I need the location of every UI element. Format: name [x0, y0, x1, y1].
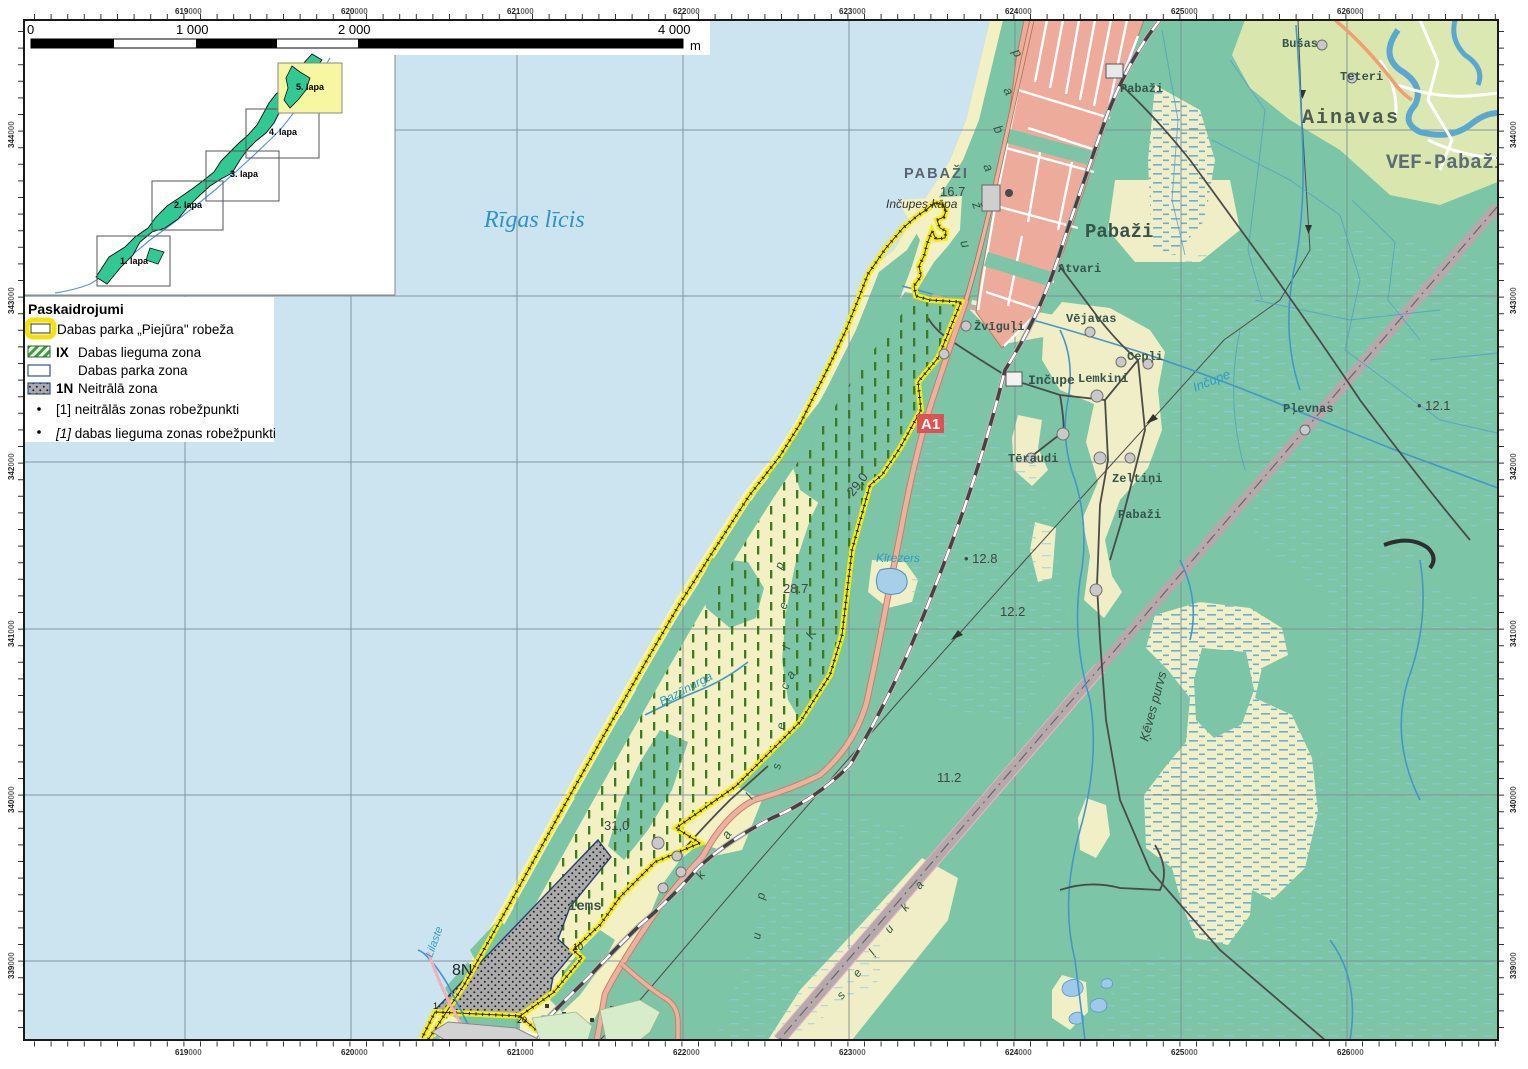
svg-text:Vējavas: Vējavas — [1066, 312, 1116, 326]
svg-text:4. lapa: 4. lapa — [269, 127, 298, 137]
svg-text:Pļevnas: Pļevnas — [1283, 402, 1333, 416]
svg-text:A1: A1 — [921, 416, 940, 433]
svg-text:Zeltiņi: Zeltiņi — [1112, 472, 1162, 486]
svg-text:Inčupes kāpa: Inčupes kāpa — [886, 197, 958, 211]
svg-text:28.7: 28.7 — [783, 581, 808, 596]
svg-text:622000: 622000 — [673, 7, 700, 16]
svg-text:342000: 342000 — [7, 453, 16, 480]
svg-text:339000: 339000 — [7, 952, 16, 979]
svg-text:341000: 341000 — [1509, 620, 1518, 647]
svg-text:2 000: 2 000 — [338, 22, 371, 37]
svg-text:626000: 626000 — [1337, 7, 1364, 16]
svg-text:PABAŽI: PABAŽI — [904, 164, 969, 182]
svg-text:Pabaži: Pabaži — [1120, 82, 1163, 96]
svg-text:620000: 620000 — [341, 7, 368, 16]
svg-text:m: m — [690, 38, 701, 53]
svg-text:341000: 341000 — [7, 620, 16, 647]
svg-text:[1] neitrālās zonas robežpunkt: [1] neitrālās zonas robežpunkti — [56, 402, 239, 417]
svg-text:Dabas lieguma zona: Dabas lieguma zona — [78, 345, 202, 360]
svg-text:Bušas: Bušas — [1282, 37, 1318, 51]
svg-text:Inčupe: Inčupe — [1028, 373, 1075, 388]
svg-text:1 000: 1 000 — [176, 22, 209, 37]
svg-text:4 000: 4 000 — [658, 22, 691, 37]
svg-text:Neitrālā zona: Neitrālā zona — [78, 381, 158, 396]
svg-text:Lemkini: Lemkini — [1078, 372, 1128, 386]
svg-text:12.2: 12.2 — [1000, 604, 1025, 619]
svg-text:1. lapa: 1. lapa — [120, 256, 149, 266]
svg-text:IX: IX — [56, 345, 69, 360]
svg-text:621000: 621000 — [507, 7, 534, 16]
svg-text:8N: 8N — [452, 962, 472, 979]
svg-text:VEF-Pabaži: VEF-Pabaži — [1386, 152, 1506, 175]
svg-text:Dabas parka „Piejūra" robeža: Dabas parka „Piejūra" robeža — [57, 322, 234, 337]
svg-text:622000: 622000 — [673, 1048, 700, 1057]
svg-text:619000: 619000 — [175, 7, 202, 16]
svg-text:1: 1 — [433, 1001, 438, 1011]
svg-text:340000: 340000 — [7, 786, 16, 813]
svg-text:343000: 343000 — [7, 287, 16, 314]
svg-text:• 12.8: • 12.8 — [964, 551, 997, 566]
svg-text:31,0: 31,0 — [604, 818, 629, 833]
svg-text:10: 10 — [573, 942, 583, 952]
svg-text:621000: 621000 — [507, 1048, 534, 1057]
svg-text:[1] dabas lieguma zonas robežp: [1] dabas lieguma zonas robežpunkti — [55, 426, 276, 441]
svg-text:343000: 343000 — [1509, 287, 1518, 314]
svg-text:623000: 623000 — [839, 7, 866, 16]
svg-text:619000: 619000 — [175, 1048, 202, 1057]
svg-text:624000: 624000 — [1005, 7, 1032, 16]
svg-text:Pabaži: Pabaži — [1085, 221, 1153, 243]
svg-text:Pabaži: Pabaži — [1118, 508, 1161, 522]
svg-text:339000: 339000 — [1509, 952, 1518, 979]
svg-text:626000: 626000 — [1337, 1048, 1364, 1057]
svg-text:• 12.1: • 12.1 — [1417, 398, 1450, 413]
svg-text:2. lapa: 2. lapa — [174, 200, 203, 210]
svg-text:Kīrezers: Kīrezers — [876, 551, 920, 565]
svg-text:340000: 340000 — [1509, 786, 1518, 813]
svg-text:Tēraudi: Tēraudi — [1008, 452, 1058, 466]
svg-text:1N: 1N — [56, 381, 73, 396]
svg-text:Cepļi: Cepļi — [1127, 350, 1163, 364]
svg-text:20: 20 — [517, 1015, 527, 1025]
svg-text:Rīgas līcis: Rīgas līcis — [483, 207, 585, 233]
svg-text:5. lapa: 5. lapa — [296, 82, 325, 92]
svg-text:3. lapa: 3. lapa — [230, 169, 259, 179]
svg-text:Žvīguļi: Žvīguļi — [974, 319, 1024, 334]
svg-text:0: 0 — [27, 22, 34, 37]
svg-text:Dabas parka zona: Dabas parka zona — [78, 363, 188, 378]
svg-text:620000: 620000 — [341, 1048, 368, 1057]
svg-text:344000: 344000 — [7, 121, 16, 148]
svg-text:Paskaidrojumi: Paskaidrojumi — [28, 301, 124, 317]
svg-text:625000: 625000 — [1171, 7, 1198, 16]
svg-text:623000: 623000 — [839, 1048, 866, 1057]
svg-text:625000: 625000 — [1171, 1048, 1198, 1057]
svg-text:iems: iems — [568, 899, 602, 915]
svg-text:Ainavas: Ainavas — [1302, 107, 1400, 130]
svg-text:624000: 624000 — [1005, 1048, 1032, 1057]
svg-text:11.2: 11.2 — [937, 770, 961, 785]
svg-text:342000: 342000 — [1509, 453, 1518, 480]
svg-text:Atvari: Atvari — [1058, 262, 1101, 276]
svg-text:Teteri: Teteri — [1340, 70, 1383, 84]
svg-text:344000: 344000 — [1509, 121, 1518, 148]
